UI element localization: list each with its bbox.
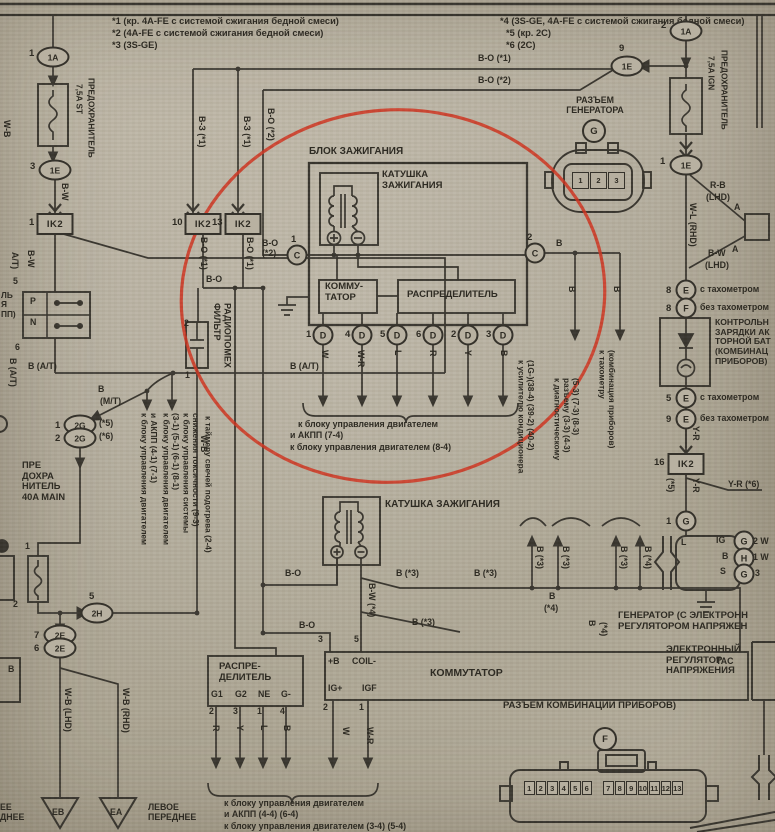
- dest: и АКПП (4-4) (6-4): [224, 810, 298, 820]
- connector-cavity: 3: [608, 172, 625, 189]
- wire: B-O: [285, 569, 301, 579]
- wire: B-W: [25, 250, 35, 268]
- wire: B: [498, 350, 508, 356]
- pin-label: A: [732, 245, 738, 255]
- connector-pin-number: 3: [486, 329, 491, 340]
- dest: к блоку управления двигателем (3-1) (5-1…: [161, 413, 180, 545]
- pin-label: 5: [354, 635, 359, 645]
- pin-label: 2: [184, 319, 189, 329]
- wire: W: [340, 727, 350, 735]
- wire: B: [8, 665, 14, 675]
- pin-label: IG+: [328, 684, 342, 694]
- wire: R: [427, 350, 437, 356]
- connector-d: D: [493, 325, 514, 346]
- connector-pin-number: 10: [172, 217, 183, 228]
- component: КОММУТАТОР: [430, 668, 503, 680]
- wire: L: [392, 350, 402, 355]
- connector-d: D: [423, 325, 444, 346]
- variant: без тахометром: [700, 303, 769, 313]
- pin-label: 1: [257, 707, 262, 717]
- component: ПРЕДОХРАНИТЕЛЬ: [719, 50, 728, 130]
- note-4: *4 (3S-GE, 4A-FE с системой сжигания бед…: [500, 16, 744, 27]
- wire: (LHD): [706, 193, 730, 203]
- connector-g: G: [734, 564, 755, 585]
- wire: Y-R (*6): [728, 480, 759, 490]
- wire: B-O (*2): [265, 108, 275, 141]
- connector-pin-number: 1: [306, 329, 311, 340]
- connector-cavity: 4: [559, 781, 570, 795]
- pin-label: 2: [323, 703, 328, 713]
- connector-pin-number: 2: [527, 232, 532, 243]
- wire: В-З (*1): [196, 116, 206, 147]
- connector-pin-number: 1: [291, 234, 296, 245]
- connector-pin-number: 13: [212, 217, 223, 228]
- component: ГЕНЕРАТОР (С ЭЛЕКТРОНН РЕГУЛЯТОРОМ НАПРЯ…: [618, 611, 748, 632]
- pin-label: 2 W: [753, 537, 769, 547]
- connector-pin-number: 3: [30, 161, 35, 172]
- pin-label: 6: [15, 343, 20, 353]
- connector-1e: 1E: [611, 56, 644, 77]
- connector-pin-number: 1: [666, 516, 671, 527]
- connector-pin-number: 5: [89, 591, 94, 602]
- connector-2e: 2E: [44, 638, 77, 659]
- wire: B (*3): [560, 546, 570, 569]
- wire: B (*3): [618, 546, 628, 569]
- connector-e: E: [676, 409, 697, 430]
- connector-f: F: [593, 727, 617, 751]
- connector-pin-number: 4: [345, 329, 350, 340]
- diode-icon: [679, 334, 693, 347]
- dest: ЛЕВОЕ ПЕРЕДНЕЕ: [148, 803, 196, 823]
- variant: (*5): [99, 419, 113, 429]
- pin-label: A: [734, 203, 740, 213]
- connector-a-box: [745, 214, 769, 240]
- component: ПРЕ ДОХРА НИТЕЛЬ 40A MAIN: [22, 460, 65, 502]
- pin-label: 1: [185, 371, 190, 381]
- wire: B-O: [206, 275, 222, 285]
- connector-pin-number: 1: [29, 217, 34, 228]
- wire: R-B: [710, 181, 726, 191]
- pulley-icon: [752, 755, 775, 800]
- variant: с тахометром: [700, 285, 759, 295]
- ground: EA: [110, 808, 122, 818]
- wire: B-O (*1): [478, 54, 511, 64]
- wire: B (A/T): [290, 362, 319, 372]
- wire: B (*3): [534, 546, 544, 569]
- connector-cavity: 9: [626, 781, 637, 795]
- connector-pin-number: 6: [416, 329, 421, 340]
- wire: B: [556, 239, 562, 249]
- variant: (*6): [99, 432, 113, 442]
- wire: B (A/T): [7, 358, 17, 387]
- wire: W-L (RHD): [687, 203, 697, 247]
- connector-pin-number: 16: [654, 457, 665, 468]
- connector-g: G: [582, 119, 606, 143]
- connector-g: G: [676, 511, 697, 532]
- component: КОММУ- ТАТОР: [325, 282, 363, 303]
- symbols: [0, 84, 775, 828]
- connector-ik2: IK2: [668, 453, 705, 475]
- connector-cavity: 13: [672, 781, 683, 795]
- pin-label: B: [722, 552, 728, 562]
- note-3: *3 (3S-GE): [112, 40, 157, 51]
- dest: к блоку управления двигателем: [298, 420, 438, 430]
- pin-label: P: [30, 297, 36, 307]
- pin-label: NE: [258, 690, 270, 700]
- dest: к тахометру (комбинация приборов): [597, 350, 616, 448]
- dest: к усилителю кондиционера (1G-)(38-4) (39…: [516, 360, 535, 473]
- wire: В-З (*1): [241, 116, 251, 147]
- pin-label: G2: [235, 690, 247, 700]
- pin-label: 1: [25, 542, 30, 552]
- pin-label: 3: [233, 707, 238, 717]
- connector-pin-number: 1: [55, 420, 60, 431]
- pin-label: IGF: [362, 684, 377, 694]
- dest: к диагностическому разъему (3-3) (4-3) (…: [552, 378, 580, 460]
- wire: B-O (*2): [262, 239, 278, 259]
- pin-label: 1: [359, 703, 364, 713]
- connector-d: D: [387, 325, 408, 346]
- dest: ЕЕ ДНЕЕ: [0, 803, 24, 823]
- connector-pin-number: 8: [666, 285, 671, 296]
- cut-connector: [0, 416, 7, 432]
- wire: W-B: [1, 120, 11, 137]
- connector-pin-number: 8: [666, 303, 671, 314]
- variant: без тахометром: [700, 414, 769, 424]
- connector-cavity: 5: [570, 781, 581, 795]
- connector-pin-number: 5: [666, 393, 671, 404]
- transformer-icon: [329, 186, 358, 232]
- connector-cavity: 3: [547, 781, 558, 795]
- connector-pin-number: 6: [34, 643, 39, 654]
- connector-cavity: 11: [649, 781, 660, 795]
- wire: W: [319, 350, 329, 358]
- fuse-element-icon: [682, 84, 690, 132]
- wire: B (A/T): [28, 362, 57, 372]
- connector-pin-number: 2: [451, 329, 456, 340]
- wire: B: [281, 725, 291, 731]
- left-edge-cut-box: [0, 556, 14, 600]
- connector-ik2: IK2: [37, 213, 74, 235]
- cut-terminal: [0, 540, 8, 552]
- scanned-wiring-diagram-page: *1 (кр. 4A-FE с системой сжигания бедной…: [0, 0, 775, 832]
- connector-pin-number: 9: [666, 414, 671, 425]
- wire: W-B (LHD): [62, 688, 72, 732]
- wire: B (*3): [396, 569, 419, 579]
- variant: с тахометром: [700, 393, 759, 403]
- wire: W-R: [355, 350, 365, 367]
- component: ЛЬ Я ПП): [1, 291, 16, 319]
- pin-label: +B: [328, 657, 340, 667]
- wire: B-O (*1): [198, 237, 208, 270]
- dest: к блоку управления двигателем: [224, 799, 364, 809]
- wire: (LHD): [705, 261, 729, 271]
- wire: B-O (*1): [244, 237, 254, 270]
- wire: B (*4): [642, 546, 652, 569]
- connector-d: D: [458, 325, 479, 346]
- wire: B: [611, 286, 621, 292]
- pin-label: 4: [280, 707, 285, 717]
- wire: W-R: [364, 727, 374, 744]
- component: 7,5A IGN: [706, 56, 715, 90]
- connector-ik2: IK2: [225, 213, 262, 235]
- pin-label: 3: [318, 635, 323, 645]
- connector-pin-number: 1: [660, 156, 665, 167]
- connector-pin-number: 7: [34, 630, 39, 641]
- connector-cavity: 8: [615, 781, 626, 795]
- connector-2h: 2H: [81, 603, 114, 624]
- wire: B-O: [299, 621, 315, 631]
- connector-cavity: 10: [638, 781, 649, 795]
- wire: B (*3): [474, 569, 497, 579]
- transformer-icon: [335, 502, 363, 546]
- component: РАЗЪЕМ ГЕНЕРАТОРА: [552, 96, 638, 116]
- wire: A/T): [9, 252, 19, 269]
- connector-cavity: 2: [590, 172, 607, 189]
- wire: (M/T): [100, 397, 121, 407]
- pin-label: 1 W: [753, 553, 769, 563]
- pin-label: 2: [13, 600, 18, 610]
- dest: и АКПП (7-4): [290, 431, 343, 441]
- wire: Y: [462, 350, 472, 356]
- connector-c: C: [287, 245, 308, 266]
- pin-label: IG: [716, 536, 725, 546]
- ground: EB: [52, 808, 64, 818]
- fusible-link-icon: [35, 560, 42, 600]
- component: 7,5A ST: [74, 84, 83, 114]
- wire: B-O (*2): [478, 76, 511, 86]
- pin-label: 3: [755, 569, 760, 579]
- component: РАЗЪЕМ КОМБИНАЦИИ ПРИБОРОВ): [503, 701, 676, 712]
- wire: Y: [234, 725, 244, 731]
- fuse-element-icon: [49, 90, 57, 140]
- connector-pin-number: 2: [55, 433, 60, 444]
- connector-pin-number: 2: [661, 20, 666, 31]
- wire: (*5): [665, 478, 675, 492]
- component: РАСПРЕ- ДЕЛИТЕЛЬ: [219, 662, 271, 683]
- connector-cavity: 6: [582, 781, 593, 795]
- dest: к таймеру свечей подогрева (2-4): [203, 416, 212, 553]
- wire: B: [98, 385, 104, 395]
- pin-label: 2: [209, 707, 214, 717]
- wire: B: [549, 592, 555, 602]
- pin-label: G-: [281, 690, 291, 700]
- connector-pin-number: 1: [29, 48, 34, 59]
- wire: B-W: [59, 183, 69, 201]
- note-2: *2 (4A-FE с системой сжигания бедной сме…: [112, 28, 323, 39]
- connector-2g: 2G: [64, 428, 97, 449]
- pin-label: G1: [211, 690, 223, 700]
- wire: B: [566, 286, 576, 292]
- brace-small: [520, 518, 546, 526]
- wire: (*4): [598, 622, 608, 636]
- component: РАСПРЕДЕЛИТЕЛЬ: [407, 290, 498, 301]
- component: КАТУШКА ЗАЖИГАНИЯ: [385, 499, 500, 510]
- note-6: *6 (2C): [506, 40, 535, 51]
- dest: к блоку управления системы снижения токс…: [181, 413, 200, 533]
- wire: (*4): [544, 604, 558, 614]
- pin-label: TAC: [716, 657, 733, 667]
- connector-cavity: 12: [661, 781, 672, 795]
- wire: B-W (*4): [366, 583, 376, 617]
- connector-pin-number: 5: [380, 329, 385, 340]
- dest: к блоку управления двигателем (3-4) (5-4…: [224, 822, 406, 832]
- connector-d: D: [352, 325, 373, 346]
- connector-1e: 1E: [39, 160, 72, 181]
- connector-d: D: [313, 325, 334, 346]
- connector-e: E: [676, 388, 697, 409]
- pin-label: N: [30, 318, 36, 328]
- component: КОНТРОЛЬН ЗАРЯДКИ АК ТОРНОЙ БАТ (КОМБИНА…: [715, 318, 771, 367]
- component: БЛОК ЗАЖИГАНИЯ: [309, 146, 403, 157]
- component: ПРЕДОХРАНИТЕЛЬ: [86, 78, 95, 158]
- pin-label: COIL-: [352, 657, 376, 667]
- wire: R: [210, 725, 220, 731]
- connector-1a: 1A: [670, 21, 703, 42]
- connector-cavity: 7: [603, 781, 614, 795]
- component: ФИЛЬТР РАДИОПОМЕХ: [212, 303, 232, 368]
- regulator-box: [752, 642, 775, 700]
- connector-c: C: [525, 243, 546, 264]
- wire: L: [258, 725, 268, 730]
- wire: B-W: [708, 249, 726, 259]
- ground-icon: [278, 305, 296, 315]
- wire: W-B (RHD): [120, 688, 130, 733]
- wire: B: [586, 620, 596, 626]
- wire: Y-R: [690, 426, 700, 441]
- dest: к блоку управления двигателем (8-4): [290, 443, 451, 453]
- connector-cavity: 1: [524, 781, 535, 795]
- lamp-icon: [678, 360, 695, 377]
- connector-cavity: 2: [536, 781, 547, 795]
- pin-label: S: [720, 567, 726, 577]
- note-5: *5 (кр. 2C): [506, 28, 551, 39]
- connector-pin-number: 9: [619, 43, 624, 54]
- connector-1e: 1E: [670, 155, 703, 176]
- brace-small: [602, 518, 640, 526]
- dest: к блоку управления двигателем и АКПП (4-…: [139, 413, 158, 545]
- component: КАТУШКА ЗАЖИГАНИЯ: [382, 170, 442, 191]
- wire: Y-R: [690, 478, 700, 493]
- connector-f: F: [676, 298, 697, 319]
- pin-label: 5: [13, 277, 18, 287]
- note-1: *1 (кр. 4A-FE с системой сжигания бедной…: [112, 16, 339, 27]
- connector-1a: 1A: [37, 47, 70, 68]
- connector-cavity: 1: [572, 172, 589, 189]
- pin-label: L: [681, 538, 686, 548]
- wire: B (*3): [412, 618, 435, 628]
- brace-small: [552, 518, 590, 526]
